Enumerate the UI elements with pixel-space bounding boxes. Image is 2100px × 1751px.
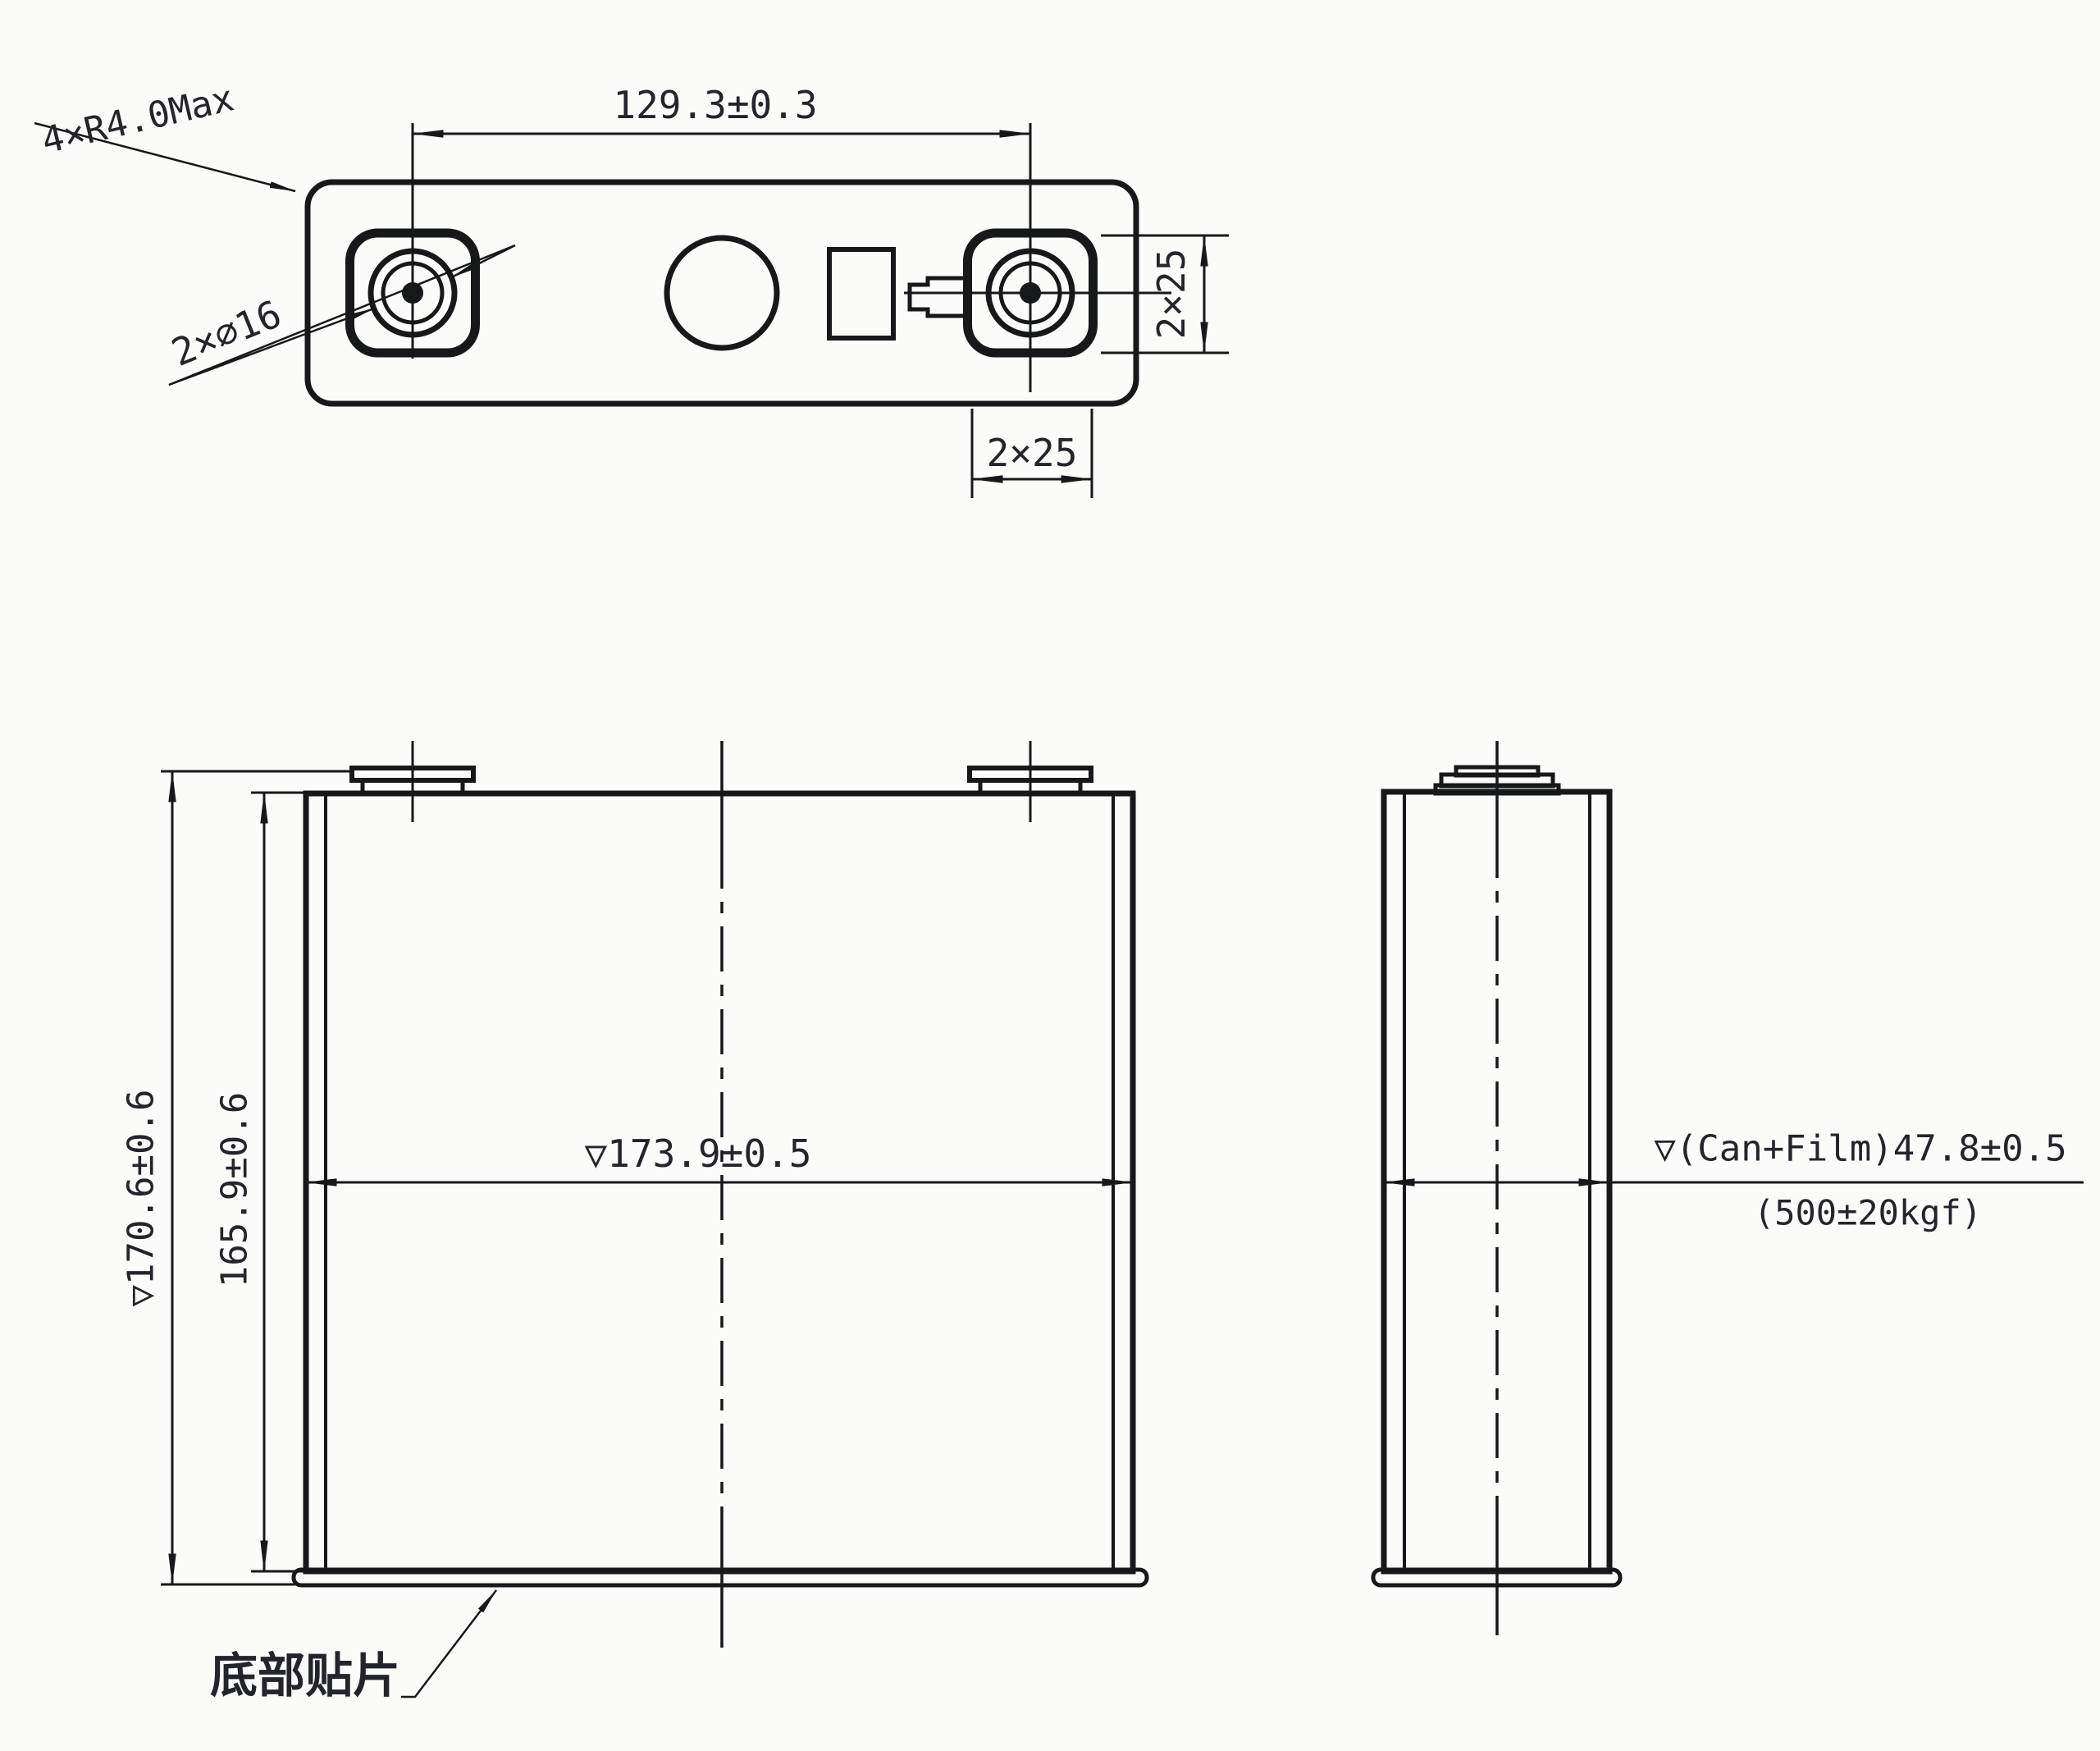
terminal-pitch-dimension: 129.3±0.3	[413, 83, 1030, 134]
front-right-terminal-boss	[970, 741, 1091, 822]
cell-width-label: ▽173.9±0.5	[585, 1132, 812, 1176]
drawing-canvas: 4×R4.0Max 2×∅16 129.3±0.3 2×25 2×25	[0, 0, 2100, 1751]
thickness-label: ▽(Can+Film)47.8±0.5	[1654, 1128, 2066, 1170]
bottom-patch-leader	[401, 1590, 496, 1697]
pad-height-label: 2×25	[1149, 249, 1194, 340]
thickness-dimension: ▽(Can+Film)47.8±0.5 (500±20kgf)	[1384, 1128, 2084, 1233]
label-window	[829, 249, 893, 338]
corner-radius-callout: 4×R4.0Max	[34, 77, 295, 191]
diameter-arrow-right	[451, 245, 515, 277]
bottom-patch-callout: 底部贴片	[210, 1590, 496, 1703]
side-view: ▽(Can+Film)47.8±0.5 (500±20kgf)	[1373, 741, 2084, 1635]
right-terminal-tab	[910, 278, 969, 316]
top-view: 4×R4.0Max 2×∅16 129.3±0.3 2×25 2×25	[34, 77, 1229, 498]
cell-width-dimension: ▽173.9±0.5	[306, 1132, 1133, 1182]
pitch-dim-label: 129.3±0.3	[613, 83, 817, 127]
top-view-left-terminal	[350, 123, 476, 359]
front-left-terminal-boss	[352, 741, 473, 822]
can-height-label: 165.9±0.6	[214, 1092, 256, 1287]
terminal-diameter-callout: 2×∅16	[166, 245, 515, 385]
thickness-condition-label: (500±20kgf)	[1754, 1193, 1982, 1233]
drawing-svg: 4×R4.0Max 2×∅16 129.3±0.3 2×25 2×25	[0, 0, 2100, 1751]
pad-width-dimension: 2×25	[972, 409, 1092, 498]
front-view: ▽173.9±0.5 ▽170.6±0.6 165.9±0.6 底部贴片	[121, 741, 1148, 1703]
pad-width-label: 2×25	[987, 431, 1078, 475]
overall-height-label: ▽170.6±0.6	[121, 1090, 162, 1307]
vent-circle	[667, 238, 777, 348]
bottom-patch-label: 底部贴片	[210, 1648, 400, 1703]
